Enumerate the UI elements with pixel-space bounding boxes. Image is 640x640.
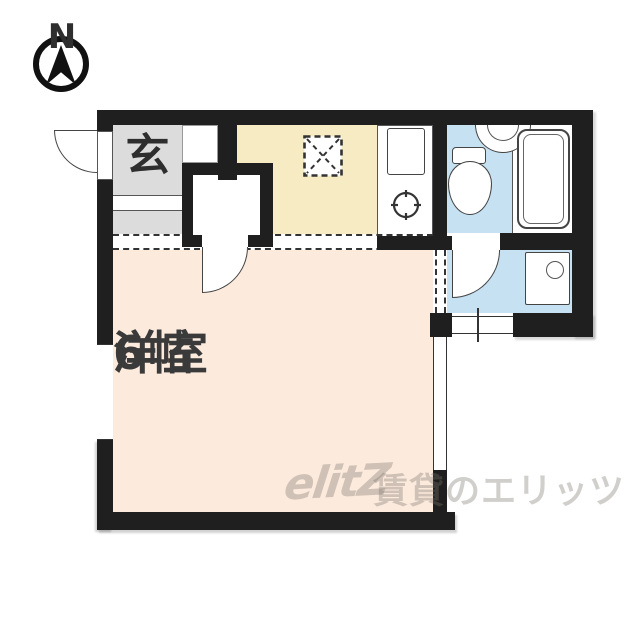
entrance-label: 玄 [113, 134, 182, 178]
wall-under-counter [377, 236, 452, 250]
wall-closet-bottom-left [182, 235, 202, 247]
wall-washroom-bottom [513, 313, 593, 337]
window-right [433, 337, 447, 470]
entrance-door [97, 131, 113, 180]
wall-left-upper [97, 110, 113, 131]
washing-machine-icon [525, 252, 570, 305]
entrance-door-swing [54, 130, 97, 173]
floor-plan: N [0, 0, 640, 640]
wall-bathroom-washroom [500, 233, 593, 250]
wall-top [97, 110, 593, 125]
washing-machine-drain-icon [546, 261, 564, 279]
room-size: 6帖 [113, 326, 197, 380]
window-left [97, 344, 113, 440]
shoe-alcove [182, 125, 218, 163]
wall-right [572, 110, 593, 337]
wall-bottom [97, 512, 455, 530]
refrigerator-space-icon [303, 135, 343, 177]
window-washroom [452, 316, 513, 334]
washroom-boundary-dash-left [435, 250, 437, 313]
washroom-boundary-dash-right [444, 250, 446, 313]
wall-counter-bathroom [433, 125, 447, 236]
window-washroom-tick [477, 308, 479, 342]
closet [193, 175, 260, 235]
wall-washroom-corner [430, 313, 452, 337]
bathtub-inner-icon [523, 134, 564, 224]
wall-closet-bottom-right [248, 235, 273, 247]
watermark: elitZ 賃貸のエリッツ [285, 455, 615, 505]
wall-left-middle [97, 180, 113, 344]
entrance-step [113, 195, 182, 211]
kitchen-sink [387, 128, 425, 175]
stove-burner-icon [391, 190, 421, 220]
watermark-text: 賃貸のエリッツ [373, 463, 625, 514]
compass-north-label: N [40, 18, 84, 56]
